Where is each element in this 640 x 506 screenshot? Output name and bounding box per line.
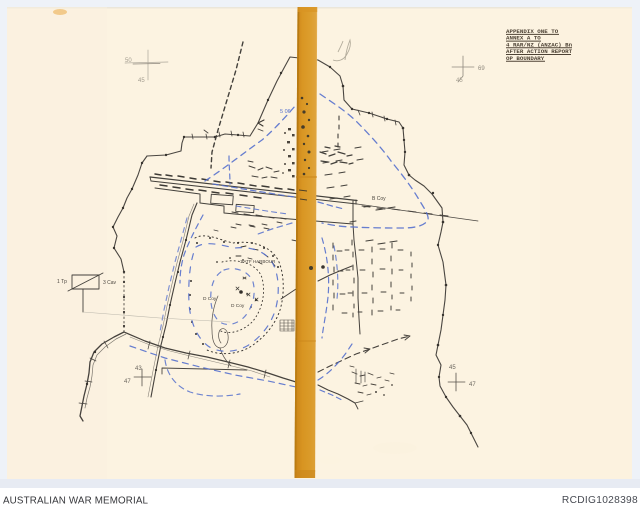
svg-text:50: 50 xyxy=(125,58,132,64)
svg-text:5 06: 5 06 xyxy=(280,109,291,115)
svg-text:45: 45 xyxy=(456,78,463,84)
svg-text:RCDIG1028398: RCDIG1028398 xyxy=(562,495,638,506)
svg-text:47: 47 xyxy=(124,379,131,385)
svg-text:D Coy: D Coy xyxy=(231,303,245,309)
svg-text:D Coy: D Coy xyxy=(203,296,217,302)
svg-text:69: 69 xyxy=(478,66,485,72)
svg-text:B Coy: B Coy xyxy=(372,196,386,202)
svg-text:45: 45 xyxy=(449,365,456,371)
svg-text:3 Cav: 3 Cav xyxy=(103,280,117,286)
svg-text:43: 43 xyxy=(135,366,142,372)
svg-text:47: 47 xyxy=(469,382,476,388)
svg-text:45: 45 xyxy=(138,78,145,84)
svg-text:1 ATF HARBOUR: 1 ATF HARBOUR xyxy=(240,259,276,264)
svg-text:AUSTRALIAN WAR MEMORIAL: AUSTRALIAN WAR MEMORIAL xyxy=(3,496,149,506)
svg-text:1 Tp: 1 Tp xyxy=(57,279,67,285)
